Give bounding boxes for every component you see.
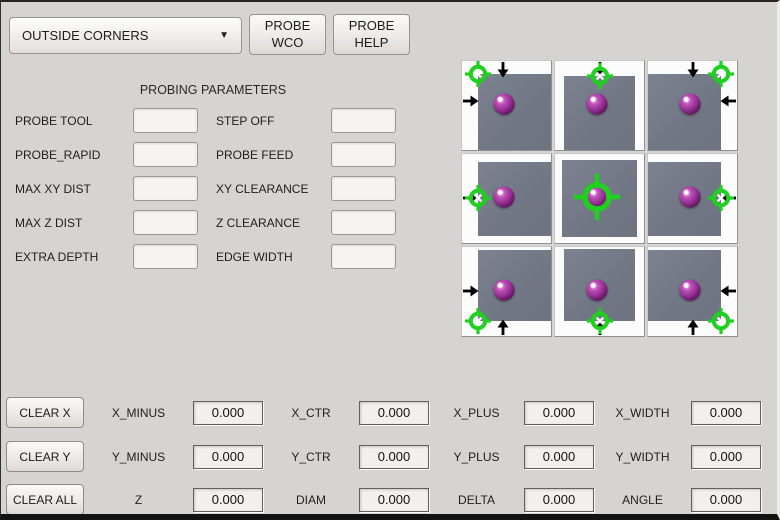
probe-cell-top-right-corner xyxy=(647,60,738,151)
arrow-up-icon xyxy=(687,319,699,335)
probe-position-grid xyxy=(461,60,738,337)
param-row: PROBE TOOL STEP OFF xyxy=(15,108,396,133)
param-row: MAX Z DIST Z CLEARANCE xyxy=(15,210,396,235)
result-row-x: CLEAR X X_MINUS 0.000 X_CTR 0.000 X_PLUS… xyxy=(1,397,780,428)
y-width-label: Y_WIDTH xyxy=(594,450,691,464)
chevron-down-icon: ▼ xyxy=(219,30,229,41)
arrow-left-icon xyxy=(720,95,736,107)
probe-screen: OUTSIDE CORNERS ▼ PROBE WCO PROBE HELP P… xyxy=(0,0,780,520)
probe-tool-input[interactable] xyxy=(133,108,198,133)
x-plus-value: 0.000 xyxy=(524,401,594,425)
probe-sphere-icon xyxy=(679,279,700,300)
crosshair-icon xyxy=(708,308,734,334)
crosshair-icon xyxy=(574,174,620,220)
crosshair-icon xyxy=(708,61,734,87)
extra-depth-label: EXTRA DEPTH xyxy=(15,250,133,264)
x-ctr-value: 0.000 xyxy=(359,401,429,425)
probe-cell-bottom-left-corner xyxy=(461,246,552,337)
param-row: MAX XY DIST XY CLEARANCE xyxy=(15,176,396,201)
delta-value: 0.000 xyxy=(524,488,594,512)
y-plus-label: Y_PLUS xyxy=(429,450,524,464)
x-ctr-label: X_CTR xyxy=(263,406,359,420)
probe-rapid-input[interactable] xyxy=(133,142,198,167)
probe-sphere-icon xyxy=(586,279,607,300)
result-row-y: CLEAR Y Y_MINUS 0.000 Y_CTR 0.000 Y_PLUS… xyxy=(1,441,780,472)
extra-depth-input[interactable] xyxy=(133,244,198,269)
y-ctr-label: Y_CTR xyxy=(263,450,359,464)
clear-y-button[interactable]: CLEAR Y xyxy=(6,441,84,472)
x-width-value: 0.000 xyxy=(691,401,761,425)
edge-width-input[interactable] xyxy=(331,244,396,269)
x-width-label: X_WIDTH xyxy=(594,406,691,420)
x-minus-label: X_MINUS xyxy=(84,406,193,420)
probe-sphere-icon xyxy=(493,93,514,114)
diam-value: 0.000 xyxy=(359,488,429,512)
angle-label: ANGLE xyxy=(594,493,691,507)
arrow-right-icon xyxy=(463,95,479,107)
step-off-label: STEP OFF xyxy=(216,114,331,128)
crosshair-icon xyxy=(587,308,613,334)
arrow-left-icon xyxy=(720,285,736,297)
probe-sphere-icon xyxy=(679,93,700,114)
probe-cell-right-edge xyxy=(647,153,738,244)
probe-cell-bottom-right-corner xyxy=(647,246,738,337)
clear-x-button[interactable]: CLEAR X xyxy=(6,397,84,428)
arrow-down-icon xyxy=(687,62,699,78)
angle-value: 0.000 xyxy=(691,488,761,512)
max-z-dist-label: MAX Z DIST xyxy=(15,216,133,230)
arrow-right-icon xyxy=(463,285,479,297)
probe-feed-label: PROBE FEED xyxy=(216,148,331,162)
y-minus-label: Y_MINUS xyxy=(84,450,193,464)
delta-label: DELTA xyxy=(429,493,524,507)
clear-all-button[interactable]: CLEAR ALL xyxy=(6,484,84,515)
probing-parameters-title: PROBING PARAMETERS xyxy=(1,83,425,97)
probe-tool-label: PROBE TOOL xyxy=(15,114,133,128)
y-ctr-value: 0.000 xyxy=(359,445,429,469)
z-clearance-label: Z CLEARANCE xyxy=(216,216,331,230)
x-minus-value: 0.000 xyxy=(193,401,263,425)
probe-feed-input[interactable] xyxy=(331,142,396,167)
probe-cell-center xyxy=(554,153,645,244)
y-minus-value: 0.000 xyxy=(193,445,263,469)
diam-label: DIAM xyxy=(263,493,359,507)
probe-rapid-label: PROBE_RAPID xyxy=(15,148,133,162)
probe-sphere-icon xyxy=(493,279,514,300)
probing-parameters-form: PROBE TOOL STEP OFF PROBE_RAPID PROBE FE… xyxy=(15,108,396,278)
x-plus-label: X_PLUS xyxy=(429,406,524,420)
probe-mode-value: OUTSIDE CORNERS xyxy=(22,28,219,43)
probe-cell-top-left-corner xyxy=(461,60,552,151)
arrow-up-icon xyxy=(497,319,509,335)
crosshair-icon xyxy=(708,185,734,211)
probe-cell-left-edge xyxy=(461,153,552,244)
y-plus-value: 0.000 xyxy=(524,445,594,469)
probe-wco-button[interactable]: PROBE WCO xyxy=(249,14,326,55)
probe-cell-bottom-edge xyxy=(554,246,645,337)
crosshair-icon xyxy=(465,185,491,211)
arrow-down-icon xyxy=(497,62,509,78)
crosshair-icon xyxy=(465,308,491,334)
probe-sphere-icon xyxy=(586,93,607,114)
param-row: PROBE_RAPID PROBE FEED xyxy=(15,142,396,167)
step-off-input[interactable] xyxy=(331,108,396,133)
probe-mode-dropdown[interactable]: OUTSIDE CORNERS ▼ xyxy=(9,17,242,54)
y-width-value: 0.000 xyxy=(691,445,761,469)
z-value: 0.000 xyxy=(193,488,263,512)
result-row-z: CLEAR ALL Z 0.000 DIAM 0.000 DELTA 0.000… xyxy=(1,484,780,515)
z-label: Z xyxy=(84,493,193,507)
crosshair-icon xyxy=(465,61,491,87)
xy-clearance-label: XY CLEARANCE xyxy=(216,182,331,196)
max-z-dist-input[interactable] xyxy=(133,210,198,235)
xy-clearance-input[interactable] xyxy=(331,176,396,201)
max-xy-dist-input[interactable] xyxy=(133,176,198,201)
edge-width-label: EDGE WIDTH xyxy=(216,250,331,264)
probe-help-button[interactable]: PROBE HELP xyxy=(333,14,410,55)
max-xy-dist-label: MAX XY DIST xyxy=(15,182,133,196)
probe-cell-top-edge xyxy=(554,60,645,151)
crosshair-icon xyxy=(587,63,613,89)
z-clearance-input[interactable] xyxy=(331,210,396,235)
probe-sphere-icon xyxy=(679,186,700,207)
param-row: EXTRA DEPTH EDGE WIDTH xyxy=(15,244,396,269)
probe-sphere-icon xyxy=(493,186,514,207)
